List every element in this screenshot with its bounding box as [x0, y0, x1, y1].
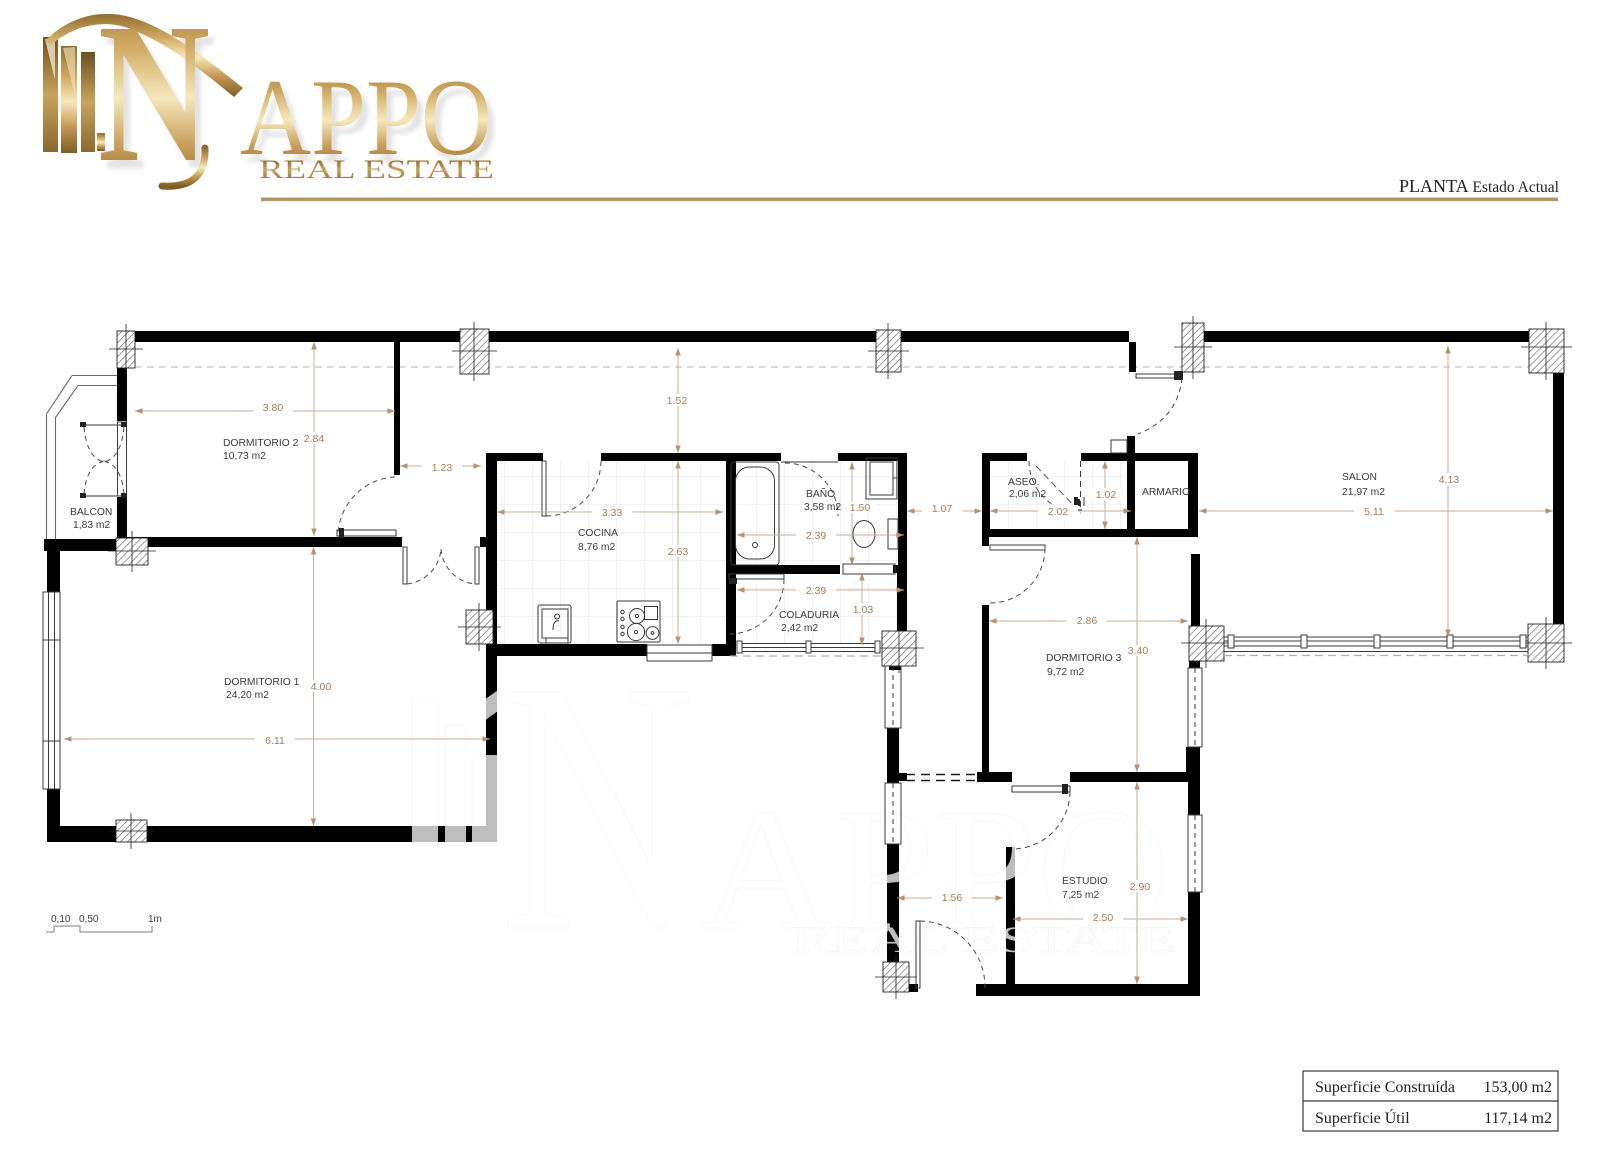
svg-text:0,50: 0,50	[79, 914, 99, 925]
svg-text:N: N	[500, 607, 695, 1006]
svg-text:BALCON: BALCON	[70, 507, 112, 518]
svg-text:Superficie Construída: Superficie Construída	[1315, 1079, 1455, 1096]
svg-text:7,25 m2: 7,25 m2	[1062, 890, 1099, 901]
svg-text:6.11: 6.11	[265, 735, 285, 747]
svg-text:REAL ESTATE: REAL ESTATE	[791, 920, 1176, 961]
svg-text:1.23: 1.23	[432, 462, 453, 474]
svg-text:5.11: 5.11	[1364, 506, 1384, 518]
svg-text:2.86: 2.86	[1077, 615, 1098, 627]
svg-text:0,10: 0,10	[51, 914, 71, 925]
svg-text:3.33: 3.33	[602, 507, 623, 519]
svg-text:3.80: 3.80	[263, 402, 284, 414]
svg-text:4.13: 4.13	[1439, 474, 1460, 486]
svg-text:10,73 m2: 10,73 m2	[223, 451, 266, 462]
svg-text:N: N	[98, 0, 210, 204]
svg-text:1,83 m2: 1,83 m2	[73, 520, 110, 531]
svg-text:24,20 m2: 24,20 m2	[226, 690, 269, 701]
svg-text:9,72 m2: 9,72 m2	[1047, 667, 1084, 678]
svg-text:REAL ESTATE: REAL ESTATE	[259, 155, 494, 184]
svg-text:Superficie Útil: Superficie Útil	[1315, 1108, 1410, 1127]
svg-text:2.02: 2.02	[1048, 506, 1069, 518]
svg-text:DORMITORIO 2: DORMITORIO 2	[223, 438, 299, 449]
svg-text:1m: 1m	[148, 914, 162, 925]
svg-text:21,97 m2: 21,97 m2	[1342, 487, 1385, 498]
svg-text:1.50: 1.50	[850, 502, 871, 514]
svg-text:4.00: 4.00	[311, 681, 332, 693]
svg-text:8,76 m2: 8,76 m2	[578, 542, 615, 553]
svg-text:153,00 m2: 153,00 m2	[1484, 1079, 1552, 1096]
svg-text:SALON: SALON	[1342, 472, 1377, 483]
svg-text:2.50: 2.50	[1093, 912, 1114, 924]
svg-text:ARMARIO: ARMARIO	[1142, 487, 1190, 498]
svg-text:117,14 m2: 117,14 m2	[1484, 1110, 1552, 1127]
svg-text:1.52: 1.52	[667, 395, 688, 407]
svg-text:PLANTA Estado Actual: PLANTA Estado Actual	[1399, 176, 1559, 196]
svg-text:2.63: 2.63	[668, 546, 689, 558]
svg-text:3.40: 3.40	[1128, 645, 1149, 657]
svg-text:DORMITORIO 1: DORMITORIO 1	[224, 677, 300, 688]
svg-text:3,58 m2: 3,58 m2	[804, 502, 841, 513]
svg-text:ASEO.: ASEO.	[1008, 477, 1039, 488]
svg-text:DORMITORIO 3: DORMITORIO 3	[1046, 653, 1122, 664]
svg-text:2,06 m2: 2,06 m2	[1009, 489, 1046, 500]
svg-text:ESTUDIO: ESTUDIO	[1062, 876, 1108, 887]
svg-text:BAÑO: BAÑO	[806, 487, 835, 500]
svg-text:2.39: 2.39	[806, 585, 827, 597]
svg-text:1.02: 1.02	[1096, 489, 1117, 501]
svg-text:1.03: 1.03	[853, 604, 874, 616]
svg-text:1.07: 1.07	[932, 503, 953, 515]
svg-text:COLADURIA: COLADURIA	[779, 610, 839, 621]
svg-text:2,42 m2: 2,42 m2	[781, 623, 818, 634]
svg-text:1.56: 1.56	[942, 892, 963, 904]
svg-text:2.84: 2.84	[304, 433, 325, 445]
svg-text:COCINA: COCINA	[578, 528, 618, 539]
svg-text:2.90: 2.90	[1130, 881, 1151, 893]
svg-text:2.39: 2.39	[806, 530, 827, 542]
